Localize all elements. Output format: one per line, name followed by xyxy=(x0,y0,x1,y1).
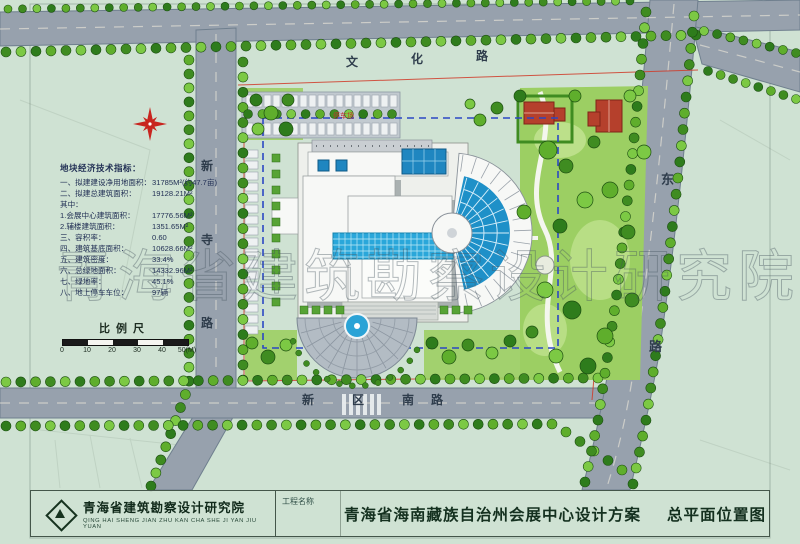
indicator-value: 0.60 xyxy=(152,232,167,243)
institute-pinyin: QING HAI SHENG JIAN ZHU KAN CHA SHE JI Y… xyxy=(83,518,275,530)
road-label-south-char: 路 xyxy=(431,392,444,407)
indicator-value: 31785M²(约47.7亩) xyxy=(152,177,217,188)
indicator-row: 1.会展中心建筑面积：17776.56M² xyxy=(60,210,230,221)
skylight xyxy=(336,160,347,171)
indicator-row: 二、拟建总建筑面积：19128.21M² xyxy=(60,188,230,199)
institute-name: 青海省建筑勘察设计研究院 xyxy=(83,497,275,516)
skylight xyxy=(318,160,329,171)
indicator-value: 97辆 xyxy=(152,287,168,298)
indicator-label: 其中： xyxy=(60,199,152,210)
scale-bar-title: 比例尺 xyxy=(62,320,187,336)
indicator-row: 其中： xyxy=(60,199,230,210)
indicator-row: 七、绿地率：45.1% xyxy=(60,276,230,287)
road-label-south-char: 新 xyxy=(302,392,314,407)
scale-bar: 比例尺 01020304050(M) xyxy=(62,320,212,356)
scale-bar-graphic xyxy=(62,339,189,346)
drawing-title: 总平面位置图 xyxy=(667,503,766,525)
indicator-label: 八、地上停车车位： xyxy=(60,287,152,298)
indicator-label: 2.辅楼建筑面积： xyxy=(60,221,152,232)
indicator-label: 七、绿地率： xyxy=(60,276,152,287)
project-name-label: 工程名称 xyxy=(276,491,341,536)
technical-indicators: 地块经济技术指标： 一、拟建建设净用地面积：31785M²(约47.7亩)二、拟… xyxy=(60,162,230,298)
indicator-label: 三、容积率： xyxy=(60,232,152,243)
indicator-row: 五、建筑密度：33.4% xyxy=(60,254,230,265)
scale-tick: 40 xyxy=(158,347,166,354)
indicator-row: 八、地上停车车位：97辆 xyxy=(60,287,230,298)
road-label-east-char: 东 xyxy=(661,172,674,187)
road-label-north-char: 化 xyxy=(411,51,423,66)
scale-bar-ticks: 01020304050(M) xyxy=(62,346,197,356)
indicator-value: 17776.56M² xyxy=(152,210,193,221)
indicator-value: 1351.65M² xyxy=(152,221,188,232)
scale-tick: 50(M) xyxy=(178,347,196,354)
road-label-north-char: 文 xyxy=(346,54,359,69)
indicator-label: 五、建筑密度： xyxy=(60,254,152,265)
road-label-east-char: 路 xyxy=(649,339,663,354)
scale-tick: 10 xyxy=(83,347,91,354)
indicator-row: 六、总绿地面积：14332.96M² xyxy=(60,265,230,276)
indicator-row: 2.辅楼建筑面积：1351.65M² xyxy=(60,221,230,232)
road-label-south-char: 区 xyxy=(352,393,364,407)
institute-logo-icon xyxy=(45,499,75,529)
indicator-label: 四、建筑基底面积： xyxy=(60,243,152,254)
indicators-title: 地块经济技术指标： xyxy=(60,162,230,174)
scale-tick: 0 xyxy=(60,347,64,354)
indicator-label: 1.会展中心建筑面积： xyxy=(60,210,152,221)
road-label-south-char: 南 xyxy=(402,392,414,407)
scale-tick: 30 xyxy=(133,347,141,354)
indicator-label: 六、总绿地面积： xyxy=(60,265,152,276)
indicator-value: 19128.21M² xyxy=(152,188,193,199)
parking-label: 停车场 xyxy=(333,111,354,120)
scale-tick: 20 xyxy=(108,347,116,354)
indicator-row: 一、拟建建设净用地面积：31785M²(约47.7亩) xyxy=(60,177,230,188)
site-plan-sheet: 文 化 路 新 寺 路 新 区 南 路 东 路 停车场 青海省建筑勘察设计研究院… xyxy=(0,0,800,544)
indicator-row: 三、容积率：0.60 xyxy=(60,232,230,243)
indicator-label: 二、拟建总建筑面积： xyxy=(60,188,152,199)
indicator-row: 四、建筑基底面积：10628.66M² xyxy=(60,243,230,254)
indicator-value: 33.4% xyxy=(152,254,174,265)
indicator-label: 一、拟建建设净用地面积： xyxy=(60,177,152,188)
institute-cell: 青海省建筑勘察设计研究院 QING HAI SHENG JIAN ZHU KAN… xyxy=(31,491,276,536)
technical-indicators-list: 一、拟建建设净用地面积：31785M²(约47.7亩)二、拟建总建筑面积：191… xyxy=(60,177,230,298)
indicator-value: 14332.96M² xyxy=(152,265,193,276)
title-block: 青海省建筑勘察设计研究院 QING HAI SHENG JIAN ZHU KAN… xyxy=(30,490,770,537)
indicator-value: 10628.66M² xyxy=(152,243,193,254)
project-title: 青海省海南藏族自治州会展中心设计方案 xyxy=(344,503,641,525)
road-label-north-char: 路 xyxy=(476,48,489,63)
indicator-value: 45.1% xyxy=(152,276,174,287)
drawing-title-cell: 青海省海南藏族自治州会展中心设计方案 总平面位置图 xyxy=(341,491,769,536)
